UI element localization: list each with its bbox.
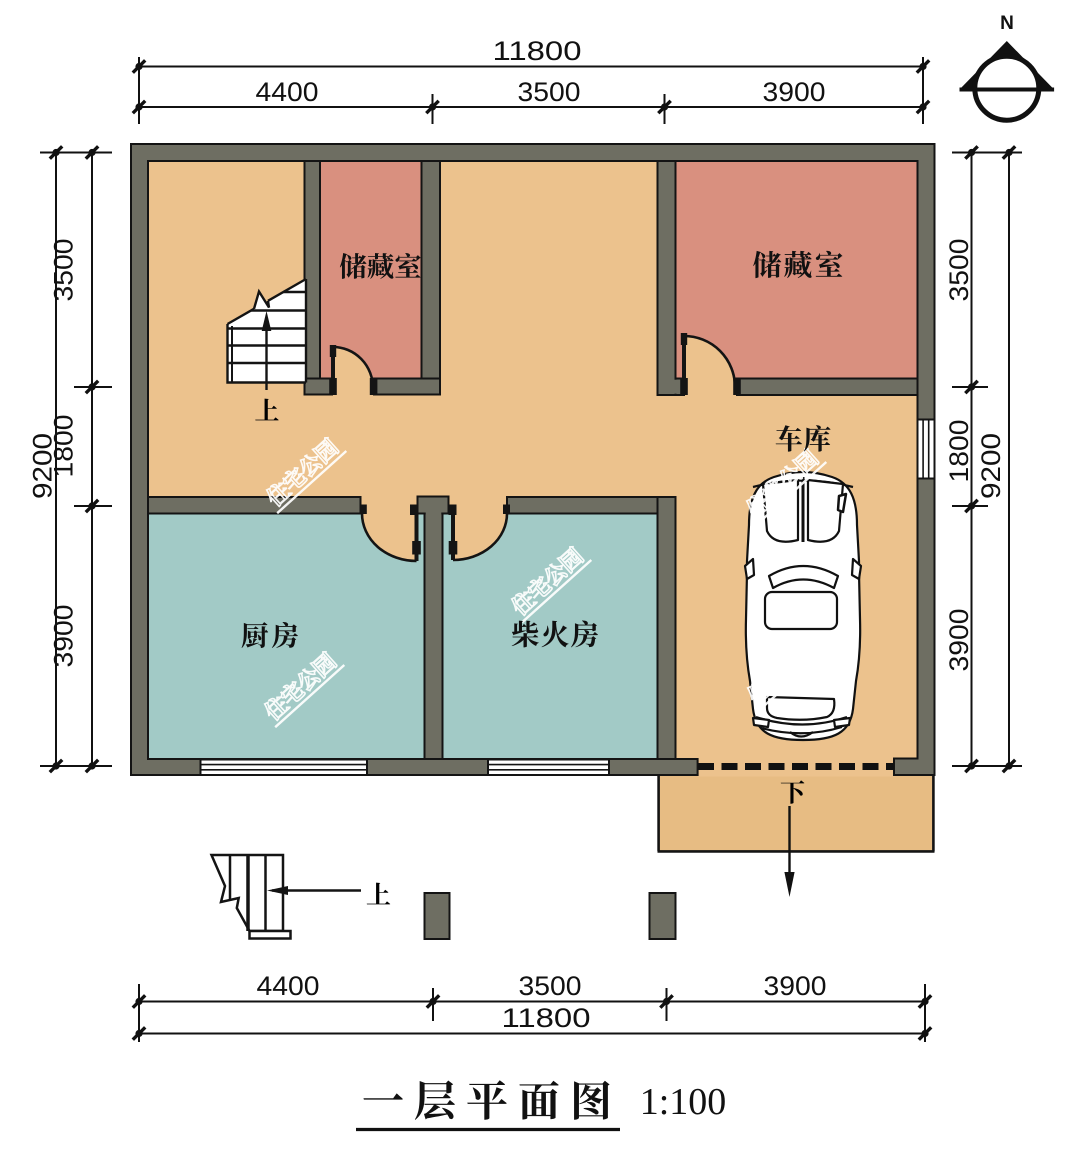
svg-text:3900: 3900 [944,609,974,672]
svg-text:1:100: 1:100 [640,1081,727,1123]
svg-text:11800: 11800 [493,36,582,66]
svg-text:3500: 3500 [519,971,582,1001]
svg-text:3900: 3900 [763,77,826,107]
svg-text:3900: 3900 [764,971,827,1001]
svg-text:1800: 1800 [944,420,974,483]
svg-text:9200: 9200 [976,433,1006,499]
svg-text:1800: 1800 [49,415,79,478]
svg-text:3900: 3900 [49,605,79,668]
svg-text:N: N [1000,13,1014,34]
svg-text:4400: 4400 [257,971,320,1001]
svg-text:3500: 3500 [518,77,581,107]
svg-text:4400: 4400 [256,77,319,107]
svg-text:11800: 11800 [502,1003,591,1033]
svg-text:3500: 3500 [944,239,974,302]
svg-text:3500: 3500 [49,239,79,302]
